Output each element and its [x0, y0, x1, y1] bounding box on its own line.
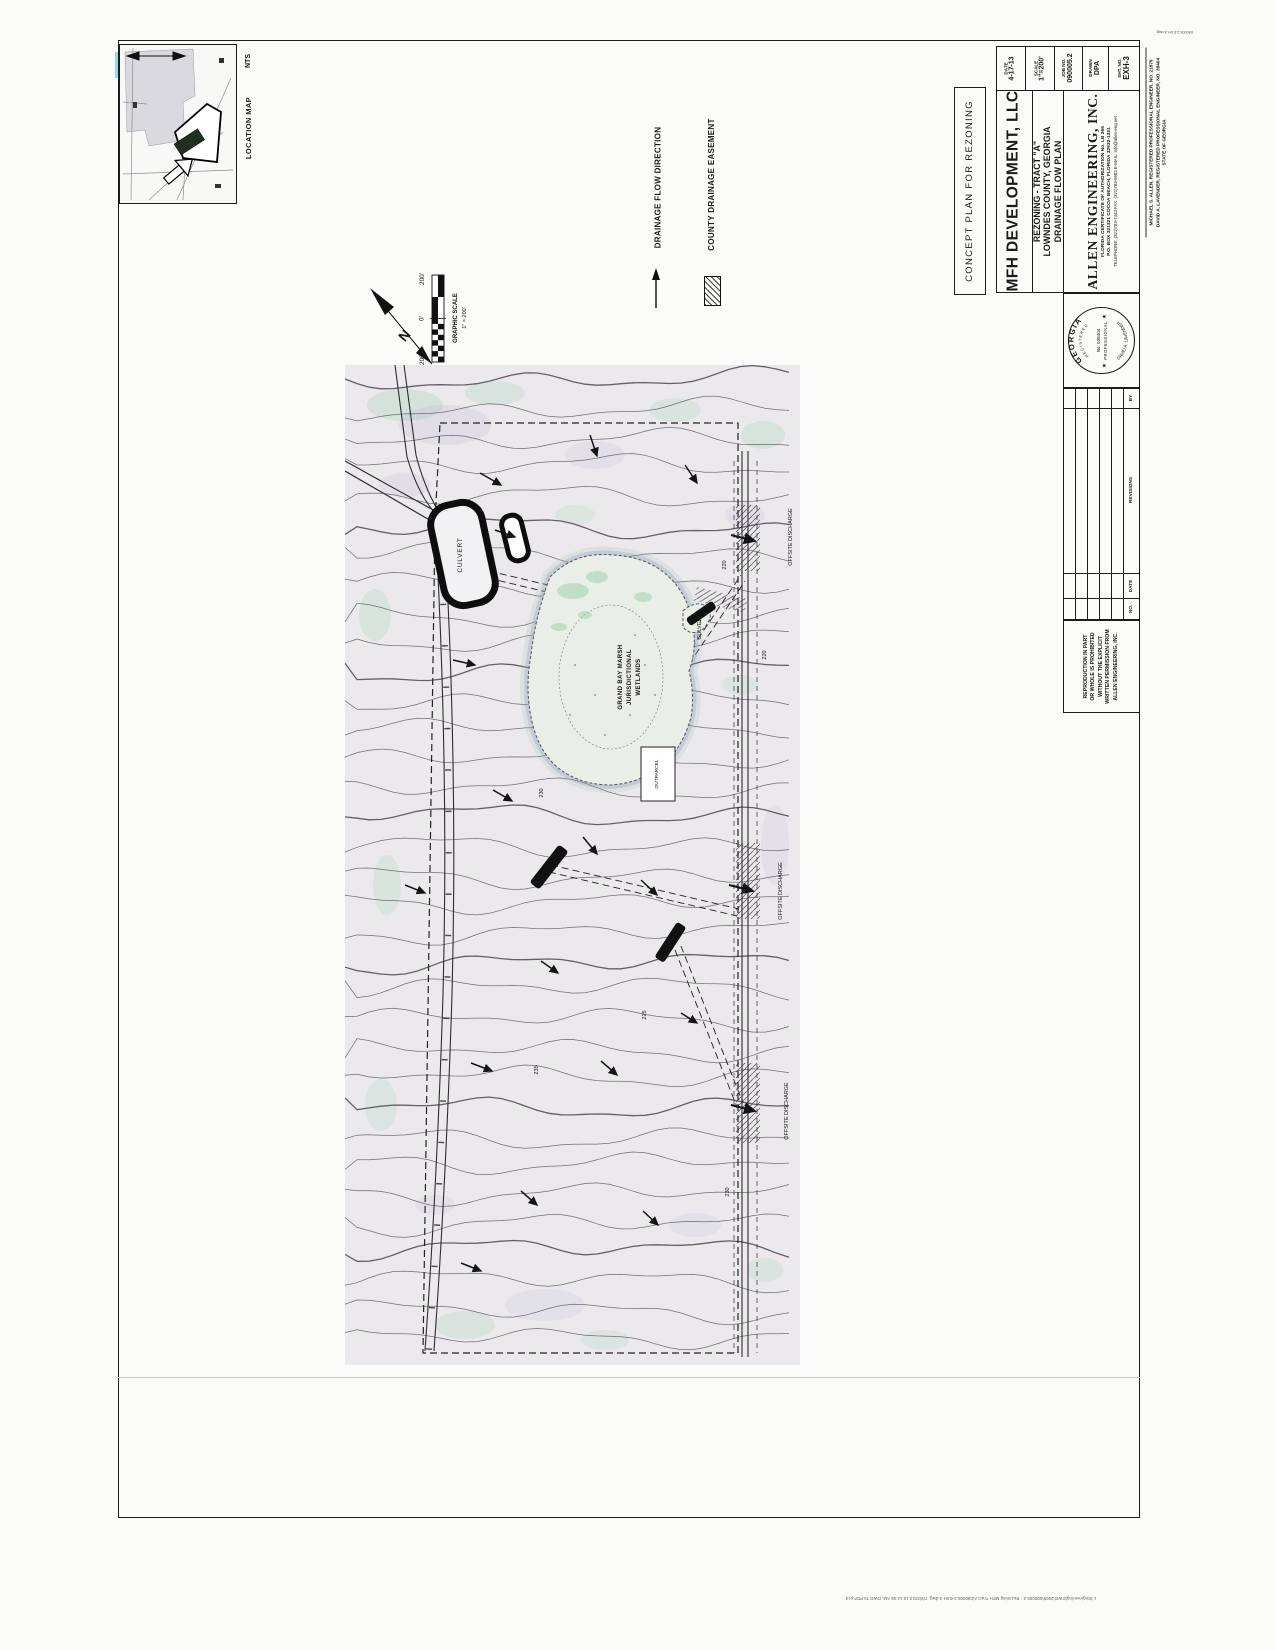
culvert-label-2: CULVERT — [697, 614, 703, 640]
offsite-discharge-label-2: OFFSITE DISCHARGE — [778, 862, 784, 920]
client-name: MFH DEVELOPMENT, LLC — [996, 90, 1032, 293]
easement-hatch-icon — [704, 276, 721, 306]
scale-0: 0' — [419, 316, 426, 321]
legend-item-flow-label: DRAINAGE FLOW DIRECTION — [653, 103, 664, 273]
field-job-no: JOB NO. 090005.2 — [1054, 46, 1082, 90]
offsite-discharge-label-1: OFFSITE DISCHARGE — [788, 508, 794, 566]
engineer-line-1: MICHAEL S. ALLEN, REGISTERED PROFESSIONA… — [1149, 59, 1156, 225]
wetland-label-1: GRAND BAY MARSH — [618, 644, 624, 709]
outparcel-label: OUTPARCEL — [654, 759, 660, 788]
offsite-discharge-label-3: OFFSITE DISCHARGE — [784, 1082, 790, 1140]
plot-stamp: L:\Engineering\DWG\2009\090005.2 - Rezon… — [820, 1596, 1096, 1601]
reproduction-note: REPRODUCTION IN PART OR WHOLE IS PROHIBI… — [1063, 620, 1140, 713]
revisions-header-date: DATE — [1127, 575, 1137, 597]
location-map-scale: NTS — [244, 48, 254, 74]
field-scale-value: 1"=200' — [1038, 56, 1046, 81]
stamp-box: CONCEPT PLAN FOR REZONING — [954, 87, 986, 295]
dwg-reference: 090005.2-EXH-3.dwg — [1145, 30, 1193, 34]
field-sheet-value: EXH-3 — [1122, 56, 1131, 80]
plan-sheet: LOCATION MAP NTS N 200' 0' 200' GRAPHIC … — [0, 0, 1275, 1650]
engineer-line-2: DAVID A. LAVENDER, REGISTERED PROFESSION… — [1155, 58, 1162, 227]
field-drawn: DRAWN DPA — [1082, 46, 1108, 90]
engineer-line-3: STATE OF GEORGIA — [1162, 120, 1169, 166]
contour-label-225: 225 — [642, 1010, 648, 1019]
firm-phone: TELEPHONE: (321)783-7443 FAX: (321)783-5… — [1113, 116, 1118, 267]
seal-number: No. 038404 — [1096, 328, 1101, 352]
engineer-certification: MICHAEL S. ALLEN, REGISTERED PROFESSIONA… — [1146, 48, 1171, 238]
engineer-seal: GEORGIA REGISTERED DAVID A. LAVENDER No.… — [1063, 293, 1140, 388]
wetland-label-2: JURISDICTIONAL — [627, 649, 633, 705]
field-sheet-no: SHT. NO. EXH-3 — [1108, 46, 1140, 90]
contour-label-220b: 220 — [762, 650, 768, 659]
legend-item-easement-label: COUNTY DRAINAGE EASEMENT — [706, 97, 717, 272]
project-line-2: LOWNDES COUNTY, GEORGIA — [1042, 127, 1052, 257]
project-title: REZONING - TRACT "A" LOWNDES COUNTY, GEO… — [1032, 90, 1063, 293]
field-drawn-value: DPA — [1094, 61, 1102, 75]
wetland-label-3: WETLANDS — [636, 658, 642, 695]
svg-text:REGISTERED: REGISTERED — [1078, 323, 1089, 358]
field-date-value: 4-17-13 — [1009, 56, 1017, 80]
seal-registered: REGISTERED — [1078, 323, 1089, 358]
flow-direction-icon — [646, 264, 666, 312]
location-map-title: LOCATION MAP — [244, 88, 254, 168]
firm-name: ALLEN ENGINEERING, INC. — [1085, 93, 1101, 289]
graphic-scale-ratio: 1" = 200' — [462, 307, 468, 329]
scale-200-right: 200' — [419, 353, 426, 365]
contour-label-220a: 220 — [722, 560, 728, 569]
firm-block: ALLEN ENGINEERING, INC. FLORIDA CERTIFIC… — [1063, 90, 1140, 293]
field-job-value: 090005.2 — [1067, 53, 1075, 82]
seal-star-left: ★ — [1101, 363, 1108, 368]
drainage-flow-map: CULVERT CULVERT GRAND BAY MARSH JURISDIC… — [345, 365, 800, 1365]
project-line-1: REZONING - TRACT "A" — [1032, 141, 1042, 242]
contour-label-230a: 230 — [539, 788, 545, 797]
seal-name: DAVID A. LAVENDER — [1115, 320, 1128, 361]
contour-label-230b: 230 — [725, 1187, 731, 1196]
revisions-header-no: NO. — [1127, 600, 1137, 618]
scale-200-left: 200' — [419, 273, 426, 285]
contour-label-235: 235 — [534, 1065, 540, 1074]
graphic-scale: 200' 0' 200' GRAPHIC SCALE 1" = 200' — [408, 262, 472, 374]
culvert-label-1: CULVERT — [457, 537, 464, 572]
graphic-scale-title: GRAPHIC SCALE — [453, 293, 459, 343]
svg-text:DAVID A. LAVENDER: DAVID A. LAVENDER — [1115, 320, 1128, 361]
location-map — [119, 44, 237, 204]
project-line-3: DRAINAGE FLOW PLAN — [1053, 141, 1063, 243]
seal-star-right: ★ — [1101, 314, 1108, 319]
field-scale: SCALE 1"=200' — [1025, 46, 1054, 90]
fold-line — [118, 1377, 1140, 1378]
field-date: DATE 4-17-13 — [996, 46, 1025, 90]
field-scale-label: SCALE — [1033, 60, 1038, 76]
revisions-header-revisions: REVISIONS — [1127, 460, 1137, 520]
revisions-header-by: BY — [1127, 388, 1137, 408]
scan-streak — [115, 52, 118, 78]
seal-profession: PROFESSIONAL — [1103, 321, 1108, 360]
